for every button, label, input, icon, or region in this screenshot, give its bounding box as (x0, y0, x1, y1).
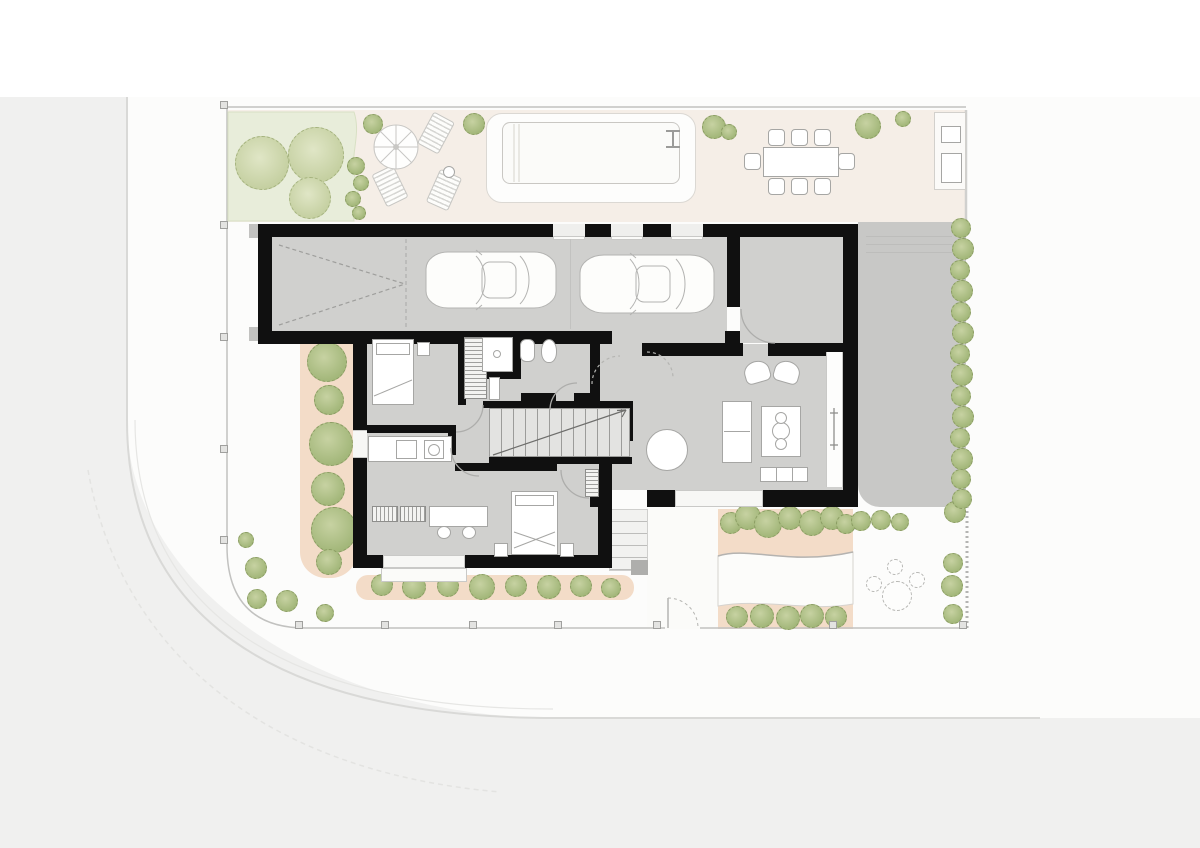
toilet (541, 339, 557, 363)
radiator-1 (372, 506, 398, 522)
wall-kitchen-north (367, 425, 455, 433)
desk (429, 506, 488, 527)
lawn (228, 112, 358, 221)
wall-garage-south (258, 331, 612, 344)
dining-table-round (646, 429, 688, 471)
kitchen-window (353, 430, 367, 458)
bed-double-pillow (515, 495, 554, 506)
sitting-room-floor (740, 237, 843, 343)
sofa-cushion-line (724, 431, 750, 432)
coffee-table-decor-2 (775, 412, 787, 424)
wall-east (843, 224, 858, 507)
radiator-2 (400, 506, 426, 522)
entry-landing-pad (631, 560, 648, 575)
garage-jamb-bottom (249, 327, 258, 341)
wall-bath-south-a (521, 393, 556, 401)
wardrobe-2 (585, 469, 599, 497)
wall-sitting-partition-foot (725, 331, 740, 356)
tv-sideboard (760, 467, 808, 482)
nightstand-2a (494, 543, 508, 557)
garage-window-1-sill (553, 236, 585, 240)
tv-sideboard-div1 (776, 468, 777, 481)
sofa (722, 401, 752, 463)
wall-stair-north (483, 401, 632, 408)
tv-sideboard-div2 (792, 468, 793, 481)
lounge-side-table (443, 166, 455, 178)
wall-bed2-south-b (465, 555, 612, 568)
wall-bed2-north-a (455, 463, 557, 471)
garage-bay-line (570, 239, 571, 329)
bath-cabinet (489, 377, 500, 400)
nightstand-2b (560, 543, 574, 557)
site-plan-canvas (0, 0, 1200, 848)
shower-drain (493, 350, 501, 358)
wall-bed2-east (598, 470, 612, 568)
living-window-south (675, 490, 763, 507)
living-glass-east (826, 352, 843, 487)
garage-jamb-top (249, 224, 258, 238)
outdoor-dining-table (763, 147, 839, 177)
outdoor-kitchen-grill (941, 153, 962, 183)
kitchen-stove (396, 440, 417, 459)
wall-living-south-b (647, 490, 675, 507)
pool-basin (502, 122, 680, 184)
wall-bed2-north-b (599, 463, 612, 471)
garden-path (718, 552, 853, 607)
wall-bath-south-b (574, 393, 600, 401)
bedroom2-window (383, 555, 465, 568)
kitchen-sink-bowl (428, 444, 440, 456)
wall-living-south-c (763, 490, 858, 507)
bedroom2-terrace (381, 568, 467, 582)
garage-window-3-sill (671, 236, 703, 240)
washbasin (520, 339, 535, 362)
wall-bath-east (590, 335, 600, 401)
wall-bed2-south-a (353, 555, 383, 568)
desk-chair-2 (462, 526, 476, 539)
wall-garage-west (258, 224, 272, 341)
nightstand-1 (417, 342, 430, 356)
wall-west-lower (353, 458, 367, 568)
wall-west-upper (353, 337, 367, 430)
garage-floor (272, 237, 727, 331)
wall-sitting-partition (727, 237, 740, 307)
bed-single-pillow (376, 343, 410, 355)
desk-chair-1 (437, 526, 451, 539)
staircase (489, 408, 630, 457)
coffee-table-decor-3 (775, 438, 787, 450)
garage-window-2-sill (611, 236, 643, 240)
outdoor-kitchen-sink (941, 126, 961, 143)
